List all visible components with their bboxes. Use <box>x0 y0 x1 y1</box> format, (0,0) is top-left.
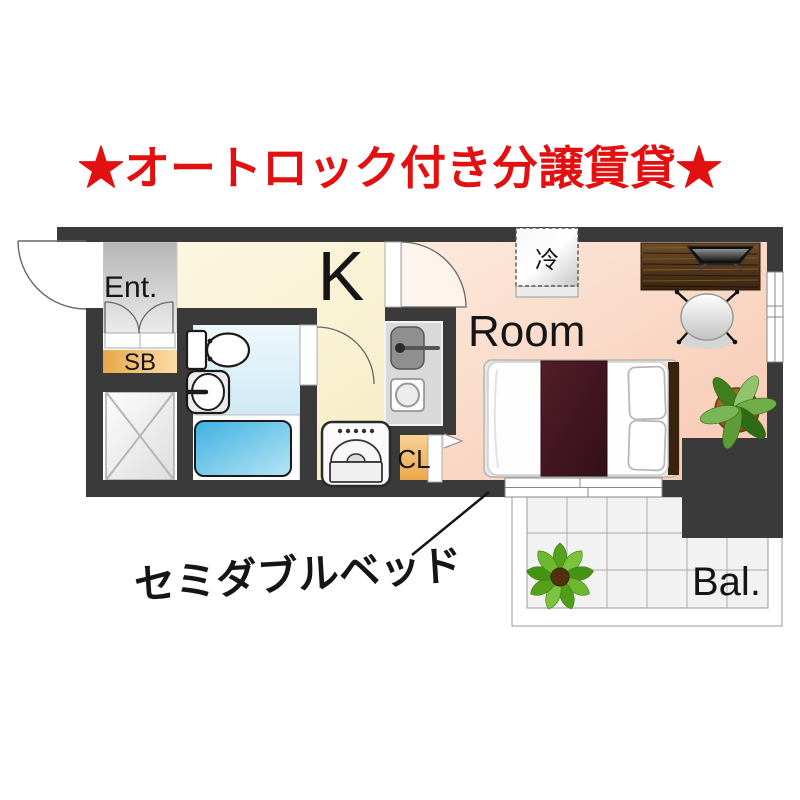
entrance-step <box>140 333 175 348</box>
toilet-icon <box>187 331 249 369</box>
right-wall-window <box>767 272 783 362</box>
wall-kitchen-room <box>442 307 456 435</box>
wall-corner-block <box>682 438 783 538</box>
wash-basin-icon <box>187 371 229 413</box>
front-doorway <box>86 242 103 308</box>
desk-icon <box>641 243 760 290</box>
pillow <box>628 366 666 419</box>
wall-bathroom-top <box>177 308 317 325</box>
bed-icon <box>484 360 679 477</box>
floor-plan: Ent. SB K Room CL 冷 Bal. <box>0 0 800 800</box>
refrigerator-label: 冷 <box>535 247 559 274</box>
floor-plan-page: ★オートロック付き分譲賃貸★ <box>0 0 800 800</box>
front-door-arc <box>18 241 86 309</box>
chair-icon <box>675 290 740 349</box>
pillow <box>628 420 666 470</box>
wall-bottom-left <box>86 480 505 497</box>
kitchen-label: K <box>318 237 365 315</box>
bed-headboard <box>668 362 679 475</box>
closet-label: CL <box>397 444 430 474</box>
entrance-step <box>105 333 140 348</box>
room-label: Room <box>468 307 585 356</box>
bed-blanket <box>541 361 607 476</box>
wall-top <box>57 227 783 242</box>
entrance-label: Ent. <box>104 271 157 304</box>
shoe-box-label: SB <box>124 349 156 376</box>
balcony-label: Bal. <box>692 560 761 604</box>
washing-machine-icon <box>322 422 390 486</box>
kitchen-counter <box>385 322 442 425</box>
bathtub-icon <box>195 421 291 476</box>
balcony-sliding-window <box>505 478 662 497</box>
